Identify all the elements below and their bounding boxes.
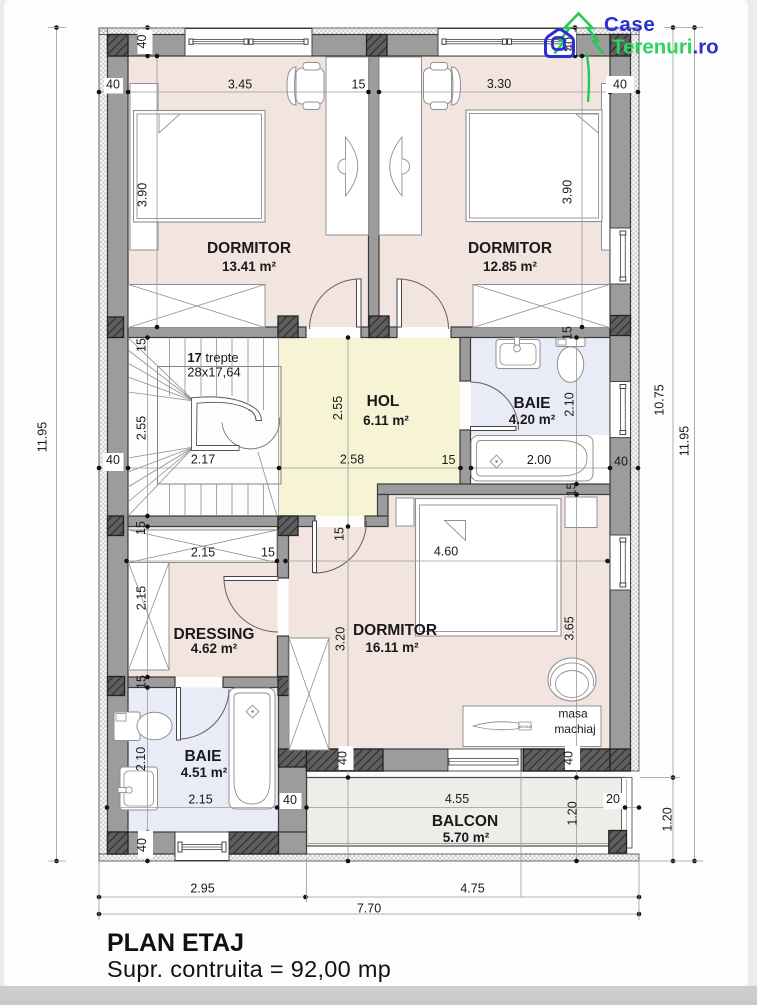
svg-text:Case: Case xyxy=(604,13,655,36)
svg-text:40: 40 xyxy=(106,78,120,92)
svg-text:2.10: 2.10 xyxy=(563,392,577,416)
svg-text:2.00: 2.00 xyxy=(527,453,551,467)
svg-text:BAIE: BAIE xyxy=(513,395,550,412)
svg-text:4.55: 4.55 xyxy=(445,792,469,806)
svg-text:2.15: 2.15 xyxy=(135,586,149,610)
svg-text:12.85 m²: 12.85 m² xyxy=(483,259,538,274)
svg-text:2.58: 2.58 xyxy=(340,453,364,467)
svg-text:4.20 m²: 4.20 m² xyxy=(509,412,556,427)
svg-text:3.45: 3.45 xyxy=(228,78,252,92)
svg-text:DORMITOR: DORMITOR xyxy=(353,622,437,639)
svg-text:1.20: 1.20 xyxy=(661,807,675,831)
svg-text:28x17,64: 28x17,64 xyxy=(187,365,241,380)
svg-text:40: 40 xyxy=(283,793,297,807)
svg-text:40: 40 xyxy=(135,35,149,49)
svg-text:HOL: HOL xyxy=(367,393,400,410)
svg-text:4.75: 4.75 xyxy=(460,882,484,896)
svg-text:3.30: 3.30 xyxy=(487,77,511,91)
svg-text:5.70 m²: 5.70 m² xyxy=(443,830,490,845)
svg-text:15: 15 xyxy=(352,78,366,92)
svg-text:15: 15 xyxy=(561,326,575,340)
svg-text:6.11 m²: 6.11 m² xyxy=(363,413,409,428)
svg-text:7.70: 7.70 xyxy=(357,902,381,916)
svg-text:11.95: 11.95 xyxy=(678,426,692,456)
svg-text:PLAN ETAJ: PLAN ETAJ xyxy=(107,929,244,957)
svg-text:15: 15 xyxy=(135,338,149,352)
svg-text:DORMITOR: DORMITOR xyxy=(468,240,552,257)
svg-text:15: 15 xyxy=(333,527,347,541)
svg-text:BALCON: BALCON xyxy=(432,813,498,830)
svg-text:10.75: 10.75 xyxy=(653,384,667,415)
svg-text:4.51 m²: 4.51 m² xyxy=(181,765,228,780)
svg-text:BAIE: BAIE xyxy=(184,748,221,765)
svg-text:40: 40 xyxy=(106,453,120,467)
svg-text:15: 15 xyxy=(565,483,579,497)
svg-text:2.55: 2.55 xyxy=(331,396,345,420)
svg-text:40: 40 xyxy=(562,751,576,765)
svg-text:17 trepte: 17 trepte xyxy=(187,350,238,365)
svg-text:15: 15 xyxy=(135,675,149,689)
svg-text:15: 15 xyxy=(442,453,456,467)
svg-text:DORMITOR: DORMITOR xyxy=(207,240,291,257)
svg-text:2.15: 2.15 xyxy=(191,546,215,560)
svg-text:40: 40 xyxy=(336,751,350,765)
svg-text:2.10: 2.10 xyxy=(134,747,148,771)
svg-text:Supr. contruita = 92,00 mp: Supr. contruita = 92,00 mp xyxy=(107,956,391,982)
svg-text:3.90: 3.90 xyxy=(136,183,150,207)
svg-text:machiaj: machiaj xyxy=(554,722,595,736)
svg-text:15: 15 xyxy=(261,546,275,560)
svg-text:1.20: 1.20 xyxy=(566,801,580,825)
svg-text:masa: masa xyxy=(558,707,588,721)
svg-text:20: 20 xyxy=(606,792,620,806)
svg-text:16.11 m²: 16.11 m² xyxy=(365,640,419,655)
svg-text:2.17: 2.17 xyxy=(191,453,215,467)
svg-text:2.95: 2.95 xyxy=(190,882,214,896)
svg-text:Terenuri.ro: Terenuri.ro xyxy=(612,36,719,59)
svg-text:4.62 m²: 4.62 m² xyxy=(191,641,238,656)
svg-text:40: 40 xyxy=(135,838,149,852)
svg-text:2.15: 2.15 xyxy=(188,793,212,807)
svg-text:4.60: 4.60 xyxy=(434,545,458,559)
svg-text:40: 40 xyxy=(613,78,627,92)
svg-text:40: 40 xyxy=(614,455,628,469)
svg-text:3.65: 3.65 xyxy=(563,616,577,640)
svg-text:13.41 m²: 13.41 m² xyxy=(222,259,277,274)
svg-text:11.95: 11.95 xyxy=(36,422,50,452)
svg-text:3.20: 3.20 xyxy=(334,627,348,651)
svg-text:2.55: 2.55 xyxy=(135,416,149,440)
svg-text:15: 15 xyxy=(134,521,148,535)
svg-text:3.90: 3.90 xyxy=(561,180,575,204)
svg-text:MACHIAJ: MACHIAJ xyxy=(518,725,532,729)
